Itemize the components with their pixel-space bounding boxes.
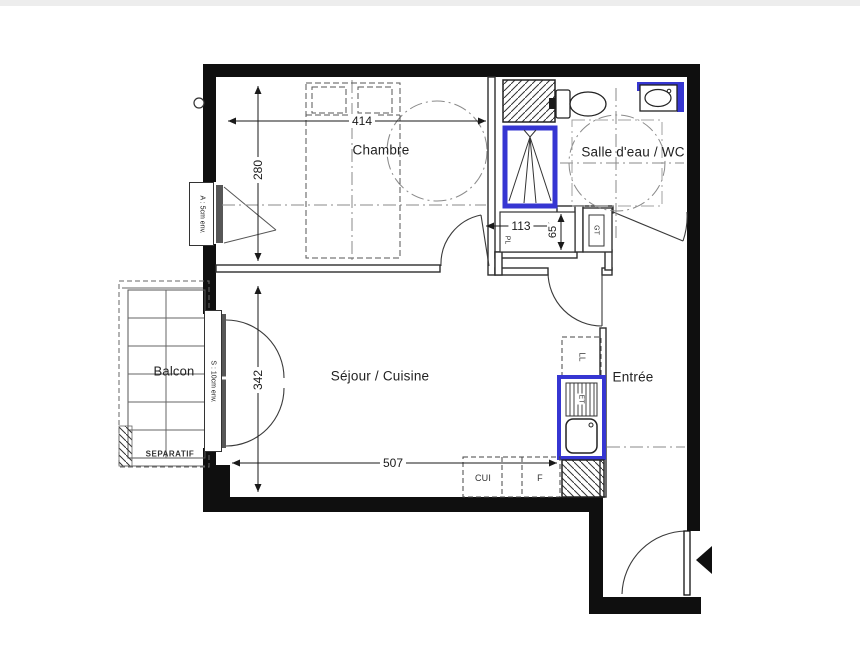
dim-label-342: 342	[251, 367, 265, 393]
dim-label-113: 113	[508, 219, 533, 233]
dim-label-414: 414	[349, 114, 375, 128]
balcony-door-note-text: S : 10cm env.	[210, 360, 217, 402]
floorplan-drawing	[0, 0, 860, 645]
axis-lines	[222, 80, 685, 447]
label-closet-pl: PL	[504, 236, 511, 245]
label-separatif: SEPARATIF	[146, 450, 195, 459]
balcony-door-note-box: S : 10cm env.	[204, 310, 222, 452]
shower-fixture	[505, 128, 555, 206]
room-label-chambre: Chambre	[353, 143, 410, 158]
column-marker-icon	[194, 98, 204, 108]
floorplan-canvas: Chambre Salle d'eau / WC Séjour / Cuisin…	[0, 0, 860, 645]
room-label-balcon: Balcon	[154, 364, 195, 379]
room-label-entree: Entrée	[613, 370, 654, 385]
window-note-text: A : 5cm env.	[198, 195, 205, 233]
entry-arrow-icon	[696, 546, 712, 574]
label-sink-et: ET	[578, 394, 585, 405]
room-label-salle-eau: Salle d'eau / WC	[581, 145, 684, 160]
dim-label-65: 65	[547, 223, 559, 241]
washbasin-fixture	[637, 82, 684, 112]
entry-door-leaf	[684, 531, 690, 595]
kitchen-sink-unit	[559, 377, 604, 458]
chambre-window	[216, 185, 276, 243]
dim-label-280: 280	[251, 157, 265, 183]
label-cooker-cui: CUI	[475, 473, 491, 483]
kitchen-duct-hatch	[562, 460, 604, 497]
dim-label-507: 507	[380, 456, 406, 470]
shaft-hatch	[503, 80, 555, 122]
label-washer-ll: LL	[578, 353, 587, 362]
room-label-sejour: Séjour / Cuisine	[331, 369, 430, 384]
label-fridge-f: F	[537, 473, 543, 483]
label-duct-gt: GT	[593, 225, 600, 235]
bed-dashed	[306, 83, 400, 258]
window-note-box: A : 5cm env.	[189, 182, 214, 246]
toilet-fixture	[549, 90, 606, 118]
